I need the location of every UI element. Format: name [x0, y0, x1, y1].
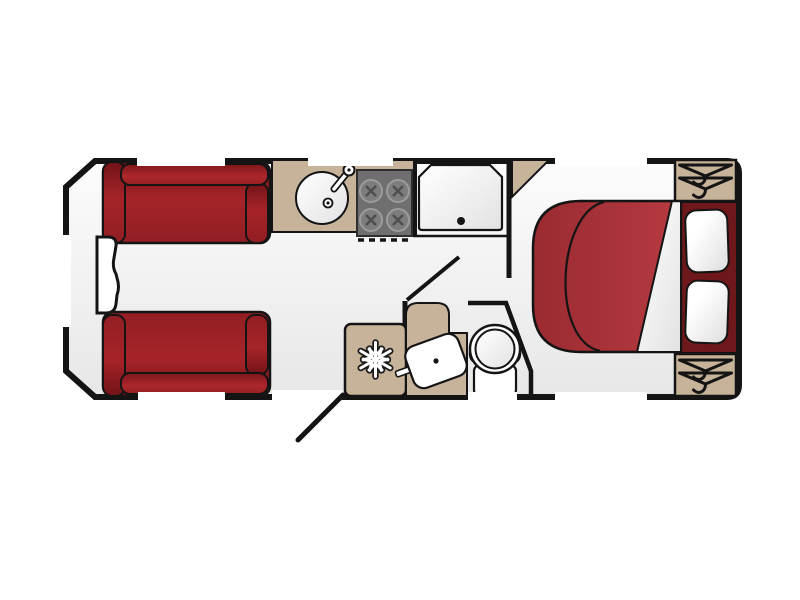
lounge-sofa-bottom: [103, 312, 270, 396]
floorplan-canvas: [0, 0, 800, 600]
shower-cubicle: [413, 160, 507, 236]
pillow: [685, 280, 729, 343]
window: [555, 392, 647, 403]
sofa-backrest: [121, 373, 268, 394]
wardrobe-bottom: [675, 354, 736, 396]
hob-burner: [360, 209, 382, 231]
sofa-armrest: [246, 315, 268, 375]
window: [308, 155, 393, 166]
entry-door-opening: [272, 390, 342, 403]
window: [138, 392, 225, 403]
window: [555, 155, 647, 166]
entry-door: [272, 390, 343, 440]
drain-icon: [324, 199, 333, 208]
front-chest: [97, 237, 119, 313]
toilet-bowl-rim: [476, 330, 515, 369]
kitchen-hob: [357, 170, 412, 240]
floorplan-drawing: [0, 0, 800, 600]
drain-icon: [457, 217, 465, 225]
hob-burner: [360, 180, 382, 202]
wardrobe-top: [675, 160, 736, 201]
lounge-sofa-top: [103, 162, 270, 243]
fridge: [345, 324, 406, 396]
hob-burner: [387, 209, 409, 231]
sofa-armrest: [246, 183, 268, 243]
window: [137, 155, 225, 166]
toilet: [470, 325, 521, 396]
sofa-backrest: [121, 164, 268, 185]
hob-burner: [387, 180, 409, 202]
window-front: [60, 235, 71, 327]
pillow: [685, 209, 729, 272]
window: [468, 392, 517, 403]
